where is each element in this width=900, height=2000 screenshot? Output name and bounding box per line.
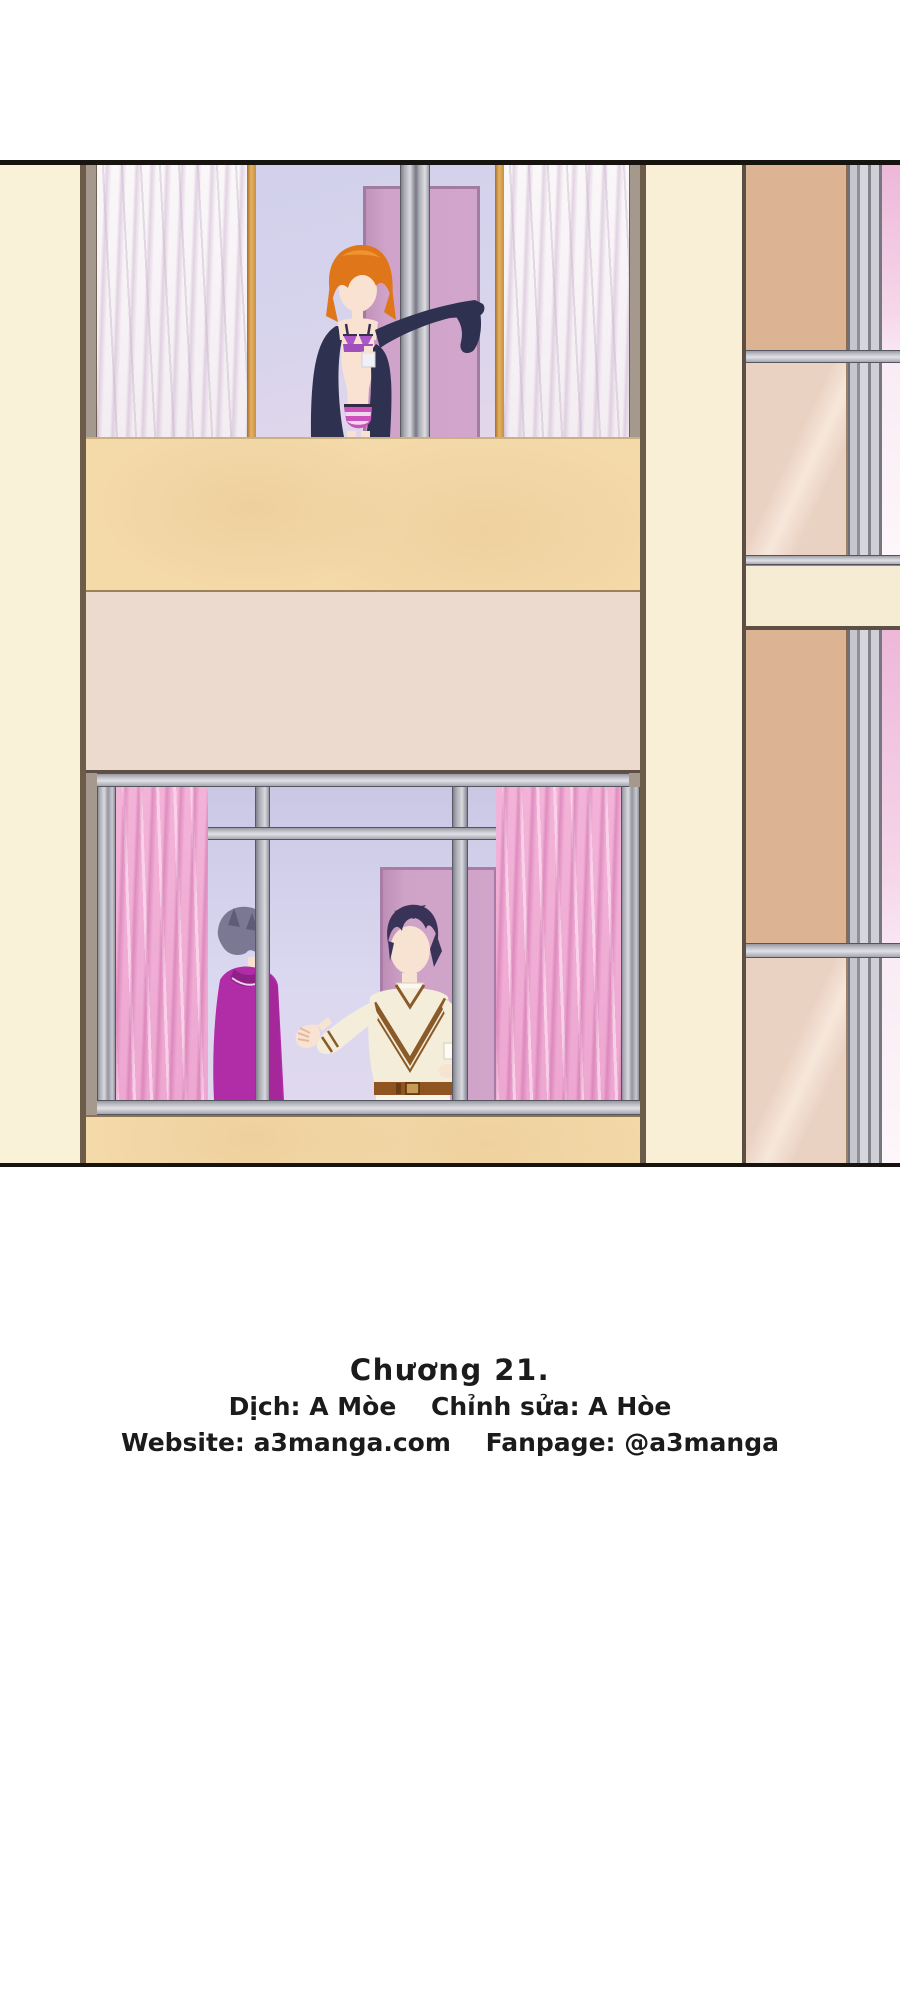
credits-block: Chương 21. Dịch: A Mòe Chỉnh sửa: A Hòe … — [0, 1352, 900, 1460]
balcony-band — [86, 437, 640, 592]
website-row: Website: a3manga.com Fanpage: @a3manga — [0, 1426, 900, 1460]
two-men-figure — [190, 875, 490, 1100]
building-facade-panel — [0, 160, 900, 1167]
lower-window-strip — [86, 770, 640, 1115]
upper-left-curtain-rod — [247, 165, 256, 437]
manga-page: Chương 21. Dịch: A Mòe Chỉnh sửa: A Hòe … — [0, 0, 900, 2000]
lower-window-right-bar — [621, 787, 640, 1100]
lower-window-head-bar — [97, 773, 629, 787]
chapter-title: Chương 21. — [0, 1352, 900, 1388]
right-glass-lower — [746, 958, 848, 1163]
upper-left-curtain — [97, 165, 247, 437]
right-curtain-glimpse-bottom — [882, 958, 900, 1163]
lower-sill-band — [86, 1115, 640, 1163]
fanpage-credit: Fanpage: @a3manga — [486, 1426, 779, 1460]
man-right-figure — [296, 905, 463, 1100]
mid-cream-wall — [646, 165, 742, 1163]
upper-window-right-frame — [629, 165, 640, 437]
lower-window-left-bar — [97, 787, 116, 1100]
wall-band — [86, 592, 640, 770]
right-hbar-3 — [746, 943, 900, 958]
upper-window-left-frame — [86, 165, 97, 437]
upper-window — [97, 165, 629, 437]
lower-window — [116, 787, 621, 1100]
man-left-figure — [213, 907, 284, 1100]
lower-left-curtain — [116, 787, 208, 1100]
lower-window-sill-bar — [97, 1100, 640, 1115]
lower-window-left-frame — [86, 773, 97, 1115]
website-credit: Website: a3manga.com — [121, 1426, 451, 1460]
girl-figure — [280, 240, 490, 437]
right-curtain-glimpse-top — [882, 165, 900, 350]
right-curtain-glimpse-upper — [882, 363, 900, 555]
right-hbar-2 — [746, 555, 900, 565]
editor-credit: Chỉnh sửa: A Hòe — [431, 1390, 671, 1424]
right-spandrel-top — [746, 165, 848, 350]
right-building — [742, 165, 900, 1163]
upper-right-curtain-rod — [495, 165, 504, 437]
right-glass-upper — [746, 363, 848, 555]
right-floor-slab — [746, 565, 900, 626]
translator-credit: Dịch: A Mòe — [229, 1390, 397, 1424]
right-spandrel-lower — [746, 630, 848, 943]
translator-row: Dịch: A Mòe Chỉnh sửa: A Hòe — [0, 1390, 900, 1424]
upper-window-strip — [86, 165, 640, 437]
upper-right-curtain — [504, 165, 629, 437]
right-hbar-1 — [746, 350, 900, 363]
right-building-frame-column — [848, 165, 882, 1163]
left-wall — [0, 165, 80, 1163]
right-curtain-glimpse-lower — [882, 630, 900, 943]
lower-right-curtain — [496, 787, 621, 1100]
